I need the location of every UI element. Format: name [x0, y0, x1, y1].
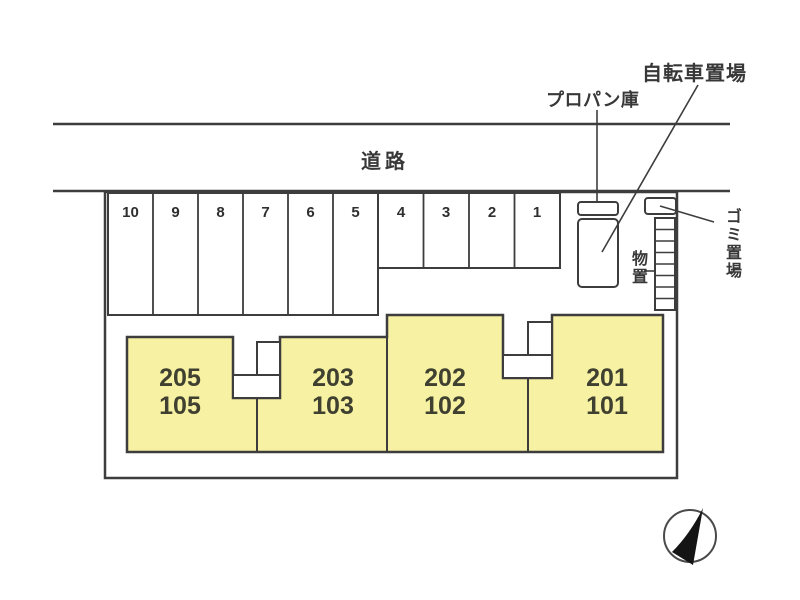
parking-space-10: 10: [108, 204, 153, 224]
unit-upper: 205: [135, 364, 225, 392]
parking-space-9: 9: [153, 204, 198, 224]
bicycle-parking-label: 自転車置場: [642, 57, 747, 86]
unit-upper: 202: [400, 364, 490, 392]
unit-lower: 101: [562, 392, 652, 420]
garbage-area-label: ゴミ置場: [719, 208, 743, 280]
parking-space-2: 2: [469, 204, 515, 224]
stairwell-1-stairs: [257, 342, 280, 375]
parking-space-8: 8: [198, 204, 243, 224]
unit-label-201-101: 201 101: [562, 364, 652, 420]
unit-lower: 105: [135, 392, 225, 420]
unit-label-203-103: 203 103: [288, 364, 378, 420]
parking-space-3: 3: [423, 204, 469, 224]
bicycle-parking-box: [578, 219, 618, 287]
site-plan: 道路 プロパン庫 自転車置場 ゴミ置場 物置 10 9 8 7 6 5 4 3 …: [0, 0, 800, 600]
site-plan-drawing: [0, 0, 800, 600]
unit-lower: 103: [288, 392, 378, 420]
parking-space-4: 4: [378, 204, 424, 224]
parking-space-1: 1: [514, 204, 560, 224]
parking-space-7: 7: [243, 204, 288, 224]
unit-upper: 203: [288, 364, 378, 392]
propane-storage-box: [578, 202, 618, 215]
storage-shed-label: 物置: [625, 250, 649, 286]
unit-lower: 102: [400, 392, 490, 420]
road-label: 道路: [350, 145, 420, 174]
propane-storage-label: プロパン庫: [546, 86, 639, 112]
unit-upper: 201: [562, 364, 652, 392]
unit-label-205-105: 205 105: [135, 364, 225, 420]
stairwell-1-landing: [233, 375, 280, 398]
stairwell-2-stairs: [528, 322, 552, 355]
parking-space-6: 6: [288, 204, 333, 224]
unit-label-202-102: 202 102: [400, 364, 490, 420]
parking-space-5: 5: [333, 204, 378, 224]
stairwell-2-landing: [503, 355, 552, 378]
